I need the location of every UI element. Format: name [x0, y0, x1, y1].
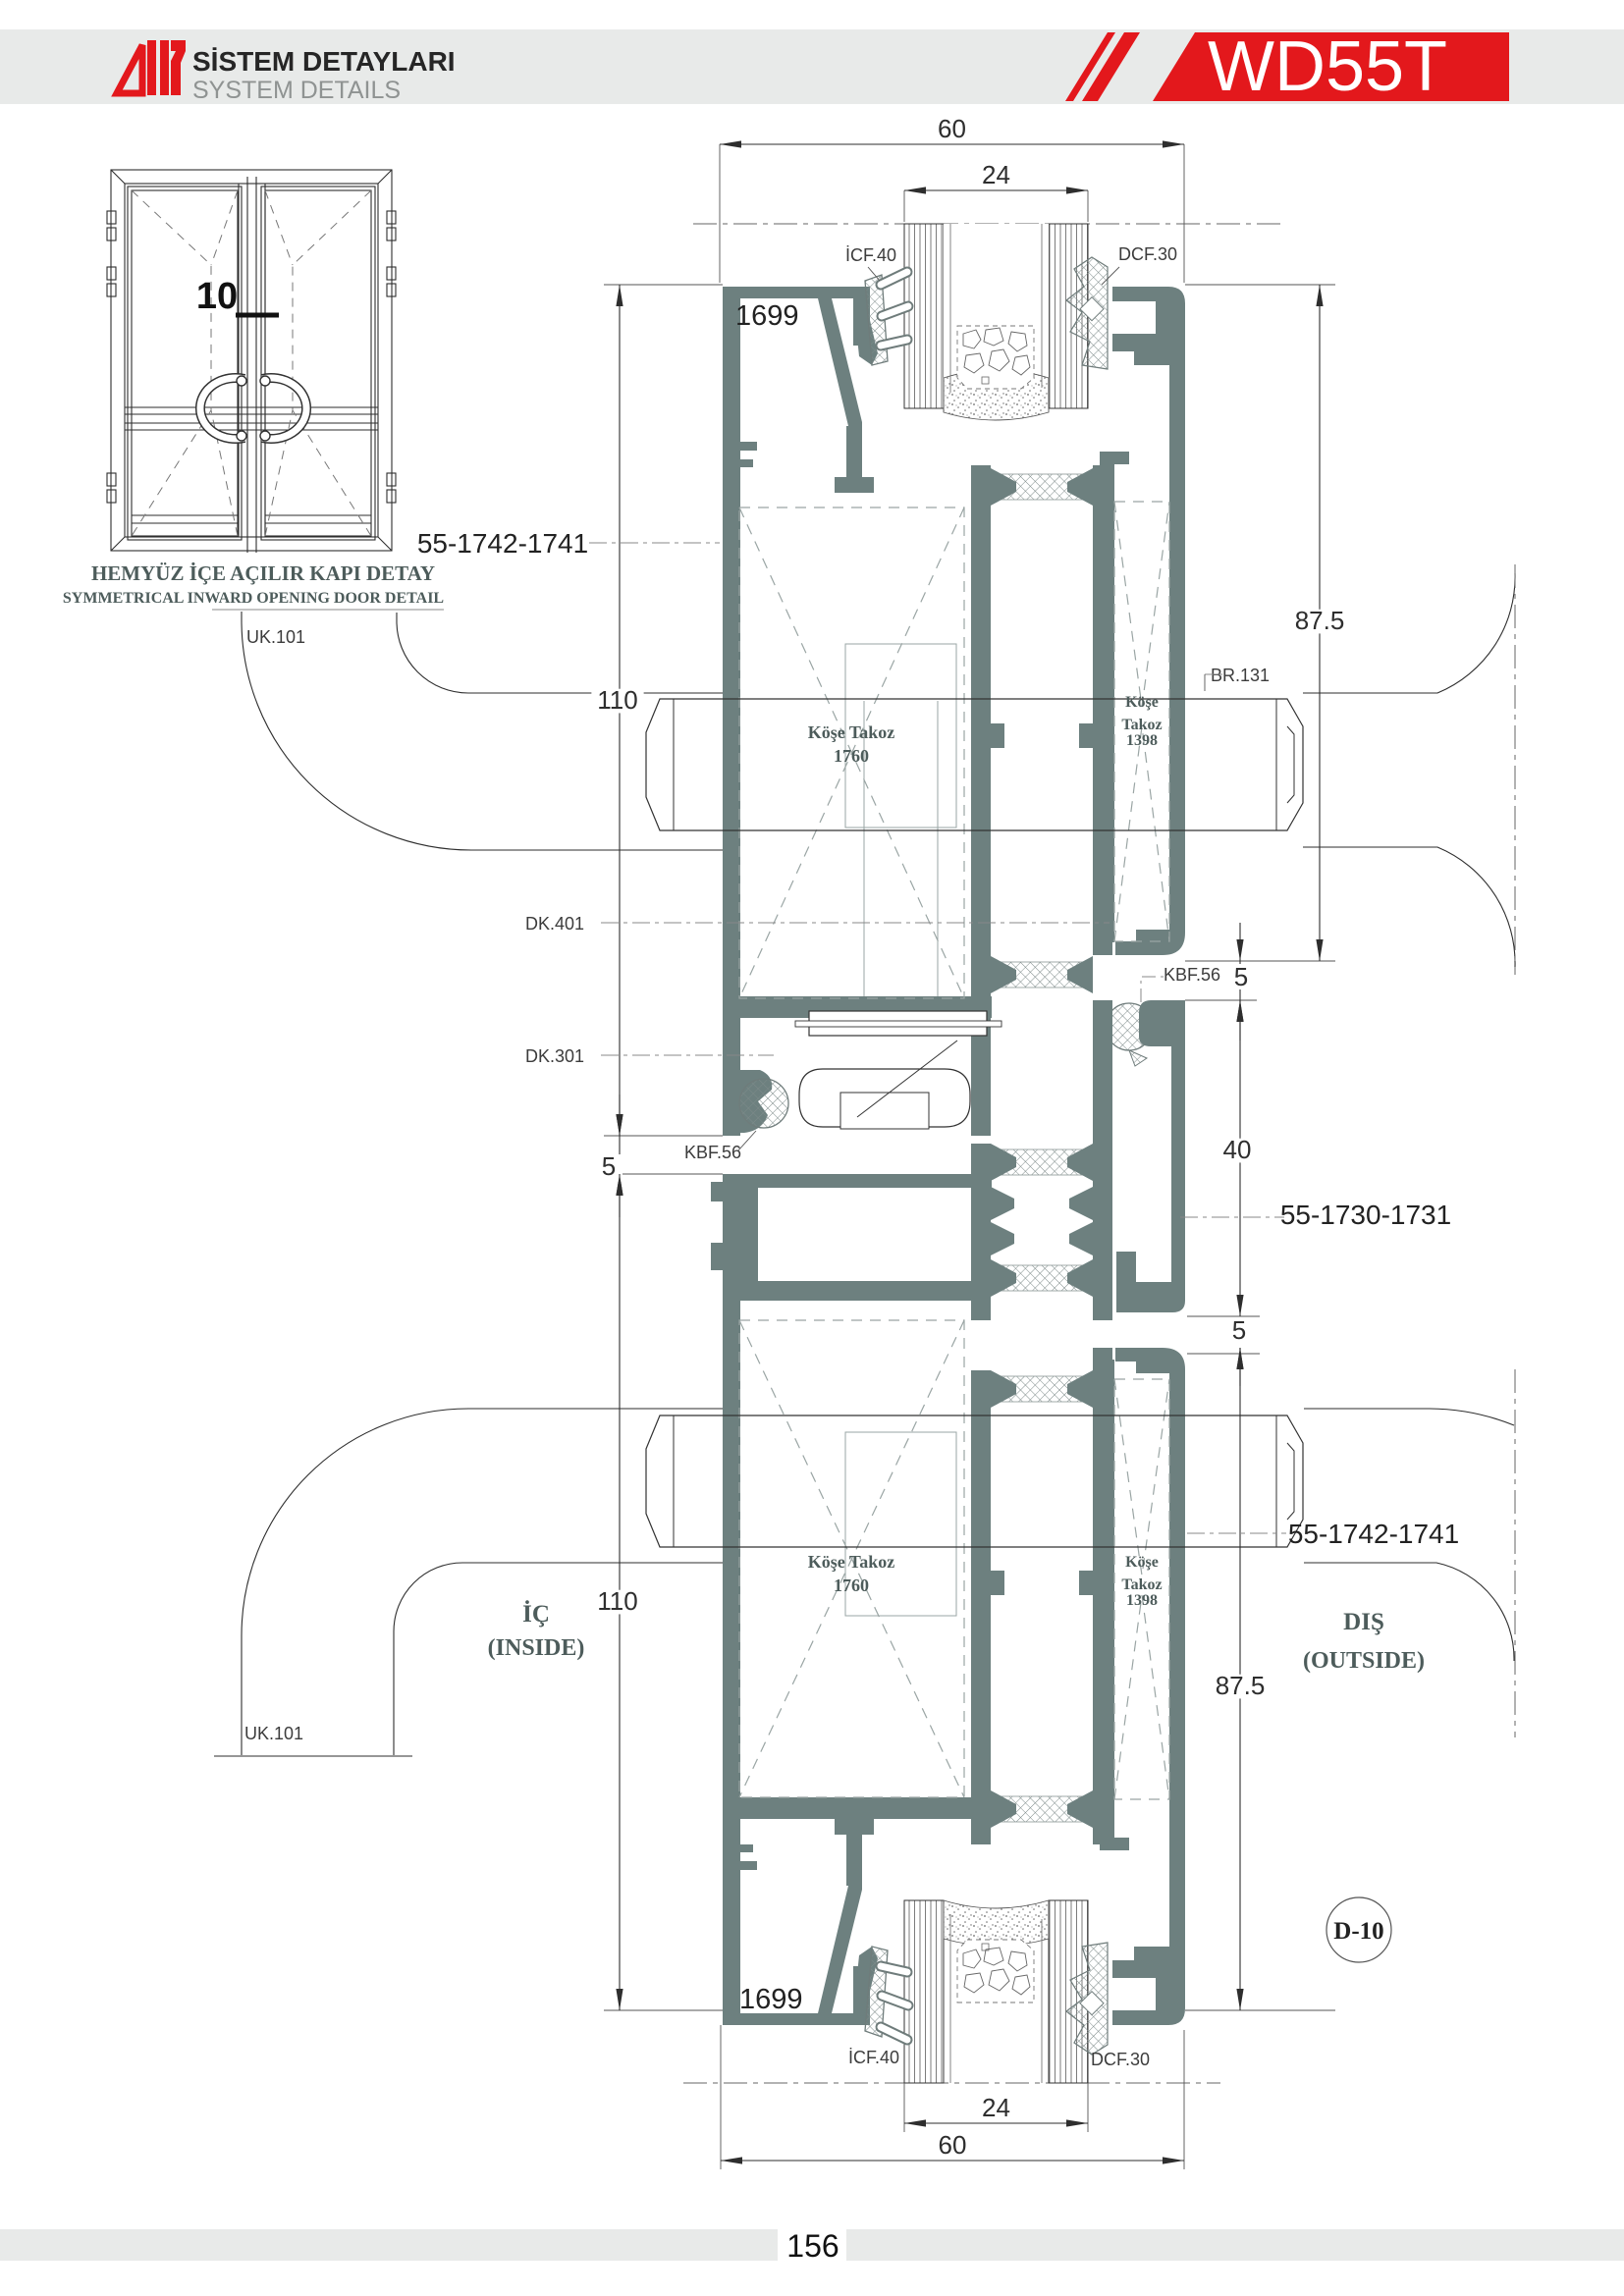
- svg-text:D-10: D-10: [1333, 1918, 1383, 1945]
- svg-text:İÇ: İÇ: [522, 1600, 550, 1628]
- svg-text:60: 60: [938, 114, 966, 143]
- svg-text:SYSTEM DETAILS: SYSTEM DETAILS: [192, 77, 401, 104]
- svg-text:SYMMETRICAL INWARD OPENING DOO: SYMMETRICAL INWARD OPENING DOOR DETAIL: [63, 590, 444, 607]
- svg-text:87.5: 87.5: [1216, 1671, 1266, 1700]
- svg-text:SİSTEM DETAYLARI: SİSTEM DETAYLARI: [192, 46, 456, 77]
- svg-text:24: 24: [982, 160, 1010, 189]
- svg-text:DCF.30: DCF.30: [1118, 244, 1177, 264]
- svg-text:(INSIDE): (INSIDE): [488, 1635, 585, 1661]
- svg-text:UK.101: UK.101: [244, 1724, 303, 1743]
- svg-text:156: 156: [786, 2228, 839, 2264]
- svg-text:UK.101: UK.101: [246, 627, 305, 647]
- svg-text:BR.131: BR.131: [1211, 666, 1270, 685]
- svg-text:Köşe Takoz: Köşe Takoz: [808, 1552, 895, 1572]
- svg-text:HEMYÜZ İÇE AÇILIR KAPI DETAY: HEMYÜZ İÇE AÇILIR KAPI DETAY: [91, 561, 435, 585]
- svg-text:KBF.56: KBF.56: [1164, 965, 1220, 985]
- svg-text:DK.401: DK.401: [525, 914, 584, 934]
- svg-text:1699: 1699: [735, 300, 799, 332]
- svg-text:İCF.40: İCF.40: [845, 245, 896, 265]
- svg-text:DCF.30: DCF.30: [1091, 2050, 1150, 2069]
- svg-text:KBF.56: KBF.56: [684, 1143, 741, 1162]
- svg-text:10: 10: [196, 276, 238, 317]
- svg-text:(OUTSIDE): (OUTSIDE): [1303, 1648, 1425, 1674]
- svg-text:1699: 1699: [739, 1984, 803, 2015]
- svg-text:110: 110: [597, 1586, 637, 1616]
- svg-text:110: 110: [597, 685, 637, 715]
- svg-text:WD55T: WD55T: [1208, 27, 1447, 106]
- svg-text:60: 60: [939, 2130, 967, 2160]
- svg-text:5: 5: [1234, 962, 1248, 991]
- svg-text:55-1742-1741: 55-1742-1741: [1288, 1519, 1459, 1549]
- svg-text:1760: 1760: [834, 746, 869, 766]
- svg-text:40: 40: [1223, 1135, 1252, 1164]
- svg-text:55-1730-1731: 55-1730-1731: [1280, 1200, 1451, 1230]
- svg-text:Takoz: Takoz: [1121, 717, 1162, 733]
- svg-text:1398: 1398: [1126, 732, 1158, 749]
- svg-text:Köşe: Köşe: [1125, 1554, 1159, 1571]
- svg-text:DIŞ: DIŞ: [1343, 1609, 1384, 1635]
- svg-text:87.5: 87.5: [1295, 606, 1345, 635]
- svg-text:24: 24: [982, 2093, 1010, 2122]
- svg-text:1398: 1398: [1126, 1592, 1158, 1609]
- svg-text:Köşe Takoz: Köşe Takoz: [808, 722, 895, 742]
- svg-text:Takoz: Takoz: [1121, 1576, 1162, 1593]
- svg-text:55-1742-1741: 55-1742-1741: [417, 528, 588, 559]
- svg-text:DK.301: DK.301: [525, 1046, 584, 1066]
- svg-text:5: 5: [602, 1151, 616, 1181]
- svg-text:Köşe: Köşe: [1125, 694, 1159, 711]
- svg-text:5: 5: [1232, 1315, 1246, 1345]
- svg-text:1760: 1760: [834, 1575, 869, 1595]
- svg-text:İCF.40: İCF.40: [848, 2048, 899, 2067]
